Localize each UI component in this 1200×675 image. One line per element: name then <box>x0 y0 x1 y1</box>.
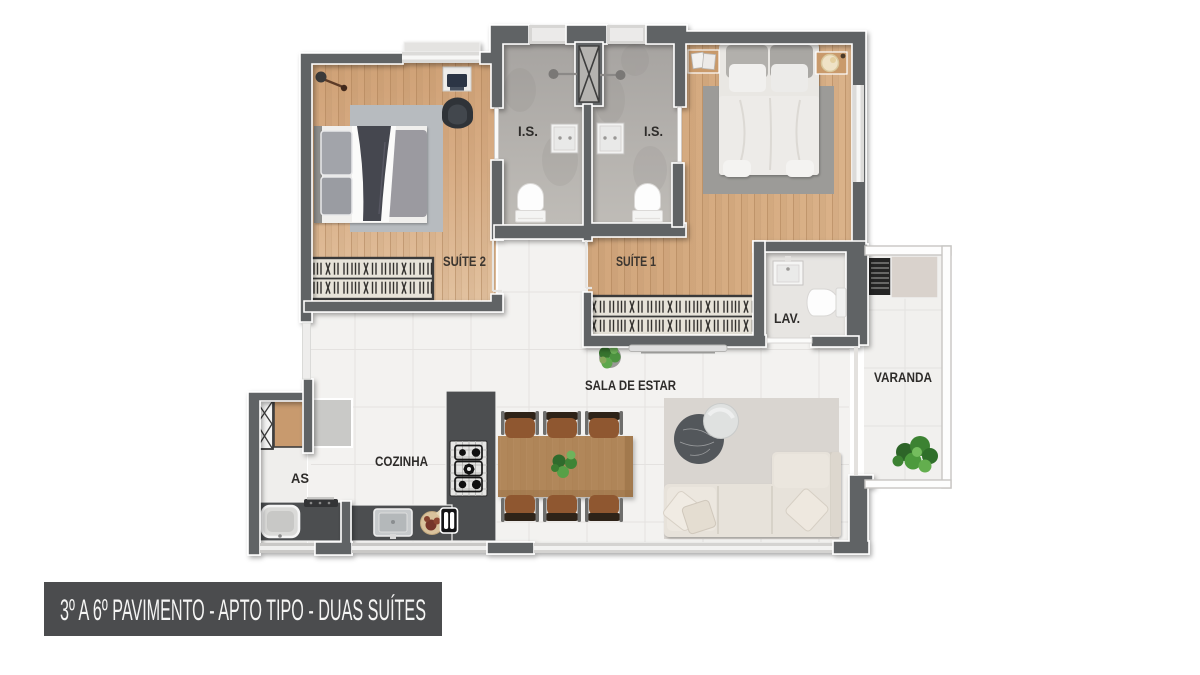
svg-text:COZINHA: COZINHA <box>375 454 428 469</box>
svg-text:AS: AS <box>291 471 309 486</box>
svg-text:VARANDA: VARANDA <box>874 370 932 385</box>
svg-text:SUÍTE 2: SUÍTE 2 <box>443 254 486 269</box>
svg-text:3º A 6º PAVIMENTO - APTO TIPO: 3º A 6º PAVIMENTO - APTO TIPO - DUAS SUÍ… <box>60 594 426 627</box>
svg-text:I.S.: I.S. <box>644 124 663 139</box>
svg-text:SALA DE ESTAR: SALA DE ESTAR <box>585 378 676 393</box>
svg-text:LAV.: LAV. <box>774 311 800 326</box>
svg-text:SUÍTE 1: SUÍTE 1 <box>616 254 656 269</box>
svg-text:I.S.: I.S. <box>518 124 538 139</box>
